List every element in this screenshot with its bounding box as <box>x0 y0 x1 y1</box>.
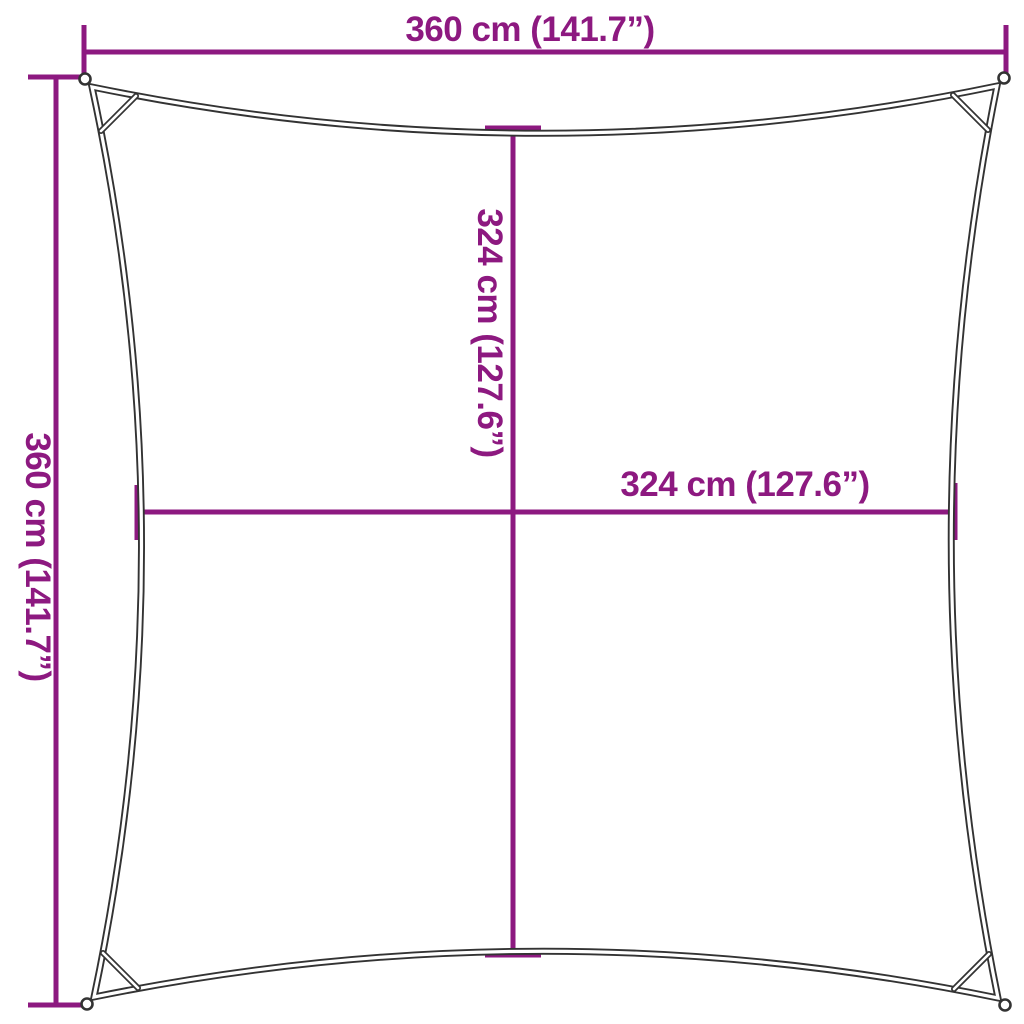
corner-chamfer-top-left-inner <box>101 96 136 131</box>
sail-corner-chamfers <box>101 95 989 989</box>
corner-ring-top-right <box>999 73 1010 84</box>
sail-corner-rings <box>80 73 1011 1011</box>
corner-chamfer-bottom-left-inner <box>103 953 138 988</box>
sail-outline <box>92 86 998 998</box>
corner-ring-bottom-right <box>1000 1000 1011 1011</box>
diagram-canvas <box>0 0 1024 1024</box>
corner-chamfer-bottom-right-inner <box>954 954 989 989</box>
dim-left-label: 360 cm (141.7”) <box>18 407 56 707</box>
dim-middle-horizontal-label: 324 cm (127.6”) <box>595 466 895 504</box>
corner-ring-bottom-left <box>82 999 93 1010</box>
shade-sail-dimension-diagram: 360 cm (141.7”) 360 cm (141.7”) 324 cm (… <box>0 0 1024 1024</box>
corner-chamfer-top-right-inner <box>953 95 988 130</box>
dim-middle-vertical-label: 324 cm (127.6”) <box>470 183 508 483</box>
dim-top-label: 360 cm (141.7”) <box>380 11 680 49</box>
sail-edge-inner <box>92 86 998 998</box>
corner-ring-top-left <box>80 74 91 85</box>
dimension-lines <box>28 25 1006 1005</box>
sail-edge-outer <box>92 86 998 998</box>
